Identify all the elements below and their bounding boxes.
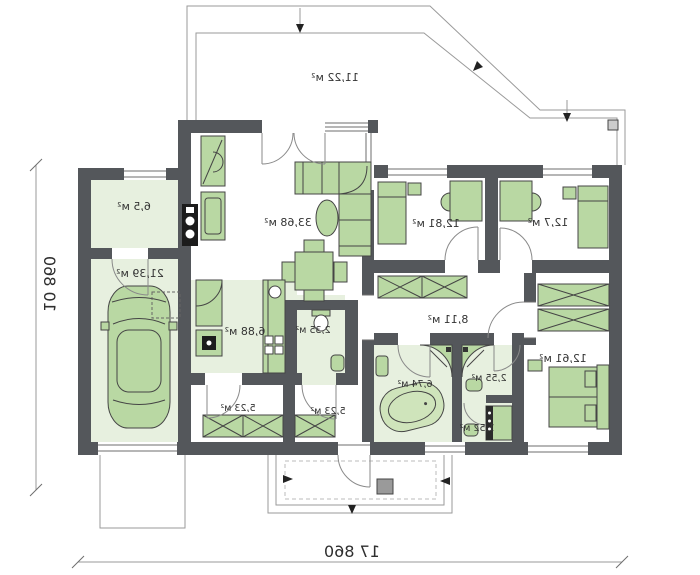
bedroom-1-furniture — [378, 181, 482, 244]
tv-cabinet — [201, 192, 225, 240]
wardrobe-hall-left — [203, 415, 283, 437]
dining-chair — [304, 289, 324, 301]
chair — [441, 193, 450, 211]
area-label-living: 33,68 м² — [264, 216, 312, 229]
bedroom-2-furniture — [500, 181, 608, 248]
bath-sink — [376, 356, 388, 376]
window-bedroom-3 — [528, 442, 588, 455]
area-label-bathroom: 6,74 м² — [397, 379, 432, 390]
car-mirror — [169, 322, 177, 330]
entry-arrow-icon — [440, 477, 450, 485]
opening-living-corridor — [362, 295, 374, 340]
window-bedroom-1 — [388, 165, 447, 178]
desk — [450, 181, 482, 221]
area-label-corridor: 8,11 м² — [428, 313, 469, 326]
slope-arrow-icon — [473, 61, 483, 71]
terrace — [187, 6, 625, 165]
dining-chair — [334, 262, 347, 282]
area-label-garage: 21,39 м² — [116, 267, 164, 280]
opening-corridor-bedroom-3 — [524, 302, 536, 338]
bed — [578, 186, 608, 248]
garage-gate — [98, 442, 177, 455]
bedroom-3-furniture — [528, 360, 609, 429]
terrace-drain-marker — [608, 120, 618, 130]
area-label-laundry: 1,52 м² — [459, 423, 494, 434]
wardrobe — [201, 136, 225, 186]
pillow — [585, 405, 596, 421]
area-label-hall-left: 5,23 м² — [220, 403, 255, 414]
desk — [500, 181, 532, 221]
wardrobe-bedroom-3 — [538, 284, 609, 331]
window-utility — [124, 168, 166, 180]
area-label-shower: 2,55 м² — [471, 373, 506, 384]
slope-arrow-icon — [296, 24, 304, 33]
window-bedroom-2 — [543, 165, 592, 178]
chair — [532, 193, 541, 211]
bed — [378, 182, 406, 244]
dining-chair — [304, 240, 324, 253]
window-bathroom — [425, 442, 465, 455]
area-label-utility: 6,5 м² — [117, 200, 151, 213]
floor-plan-drawing: 10 860 17 860 11,22 м² 6,5 м² 21,39 м² 3… — [0, 0, 700, 575]
entrance-porch — [268, 455, 452, 514]
headboard — [597, 365, 609, 429]
area-label-bedroom-1: 12,81 м² — [412, 217, 460, 230]
area-label-wc: 2,35 м² — [295, 325, 330, 336]
car — [101, 286, 177, 428]
kitchen-sink — [269, 286, 281, 298]
area-label-bedroom-3: 12,61 м² — [539, 352, 587, 365]
dimension-horizontal: 17 860 — [72, 542, 628, 568]
area-label-bedroom-2: 12,7 м² — [528, 216, 569, 229]
area-label-hall-right: 5,23 м² — [310, 406, 345, 417]
wc-sink — [331, 355, 344, 371]
floor-plan-page: 10 860 17 860 11,22 м² 6,5 м² 21,39 м² 3… — [0, 0, 700, 575]
porch-column — [377, 479, 393, 494]
nightstand — [408, 183, 421, 195]
flue-panel — [182, 204, 198, 246]
car-mirror — [101, 322, 109, 330]
coffee-table — [316, 200, 338, 236]
area-label-terrace: 11,22 м² — [311, 71, 359, 84]
room-floor-utility — [91, 180, 178, 248]
dimension-vertical: 10 860 — [30, 159, 59, 496]
height-dimension-label: 10 860 — [40, 256, 59, 312]
dining-chair — [282, 262, 295, 282]
garage-driveway — [100, 455, 185, 528]
entry-arrow-icon — [283, 475, 293, 483]
width-dimension-label: 17 860 — [324, 542, 380, 561]
wardrobe-corridor — [378, 276, 467, 298]
nightstand — [563, 187, 576, 199]
area-label-kitchen: 6,88 м² — [225, 325, 266, 338]
pillow — [585, 371, 596, 387]
dining-table — [295, 252, 333, 290]
